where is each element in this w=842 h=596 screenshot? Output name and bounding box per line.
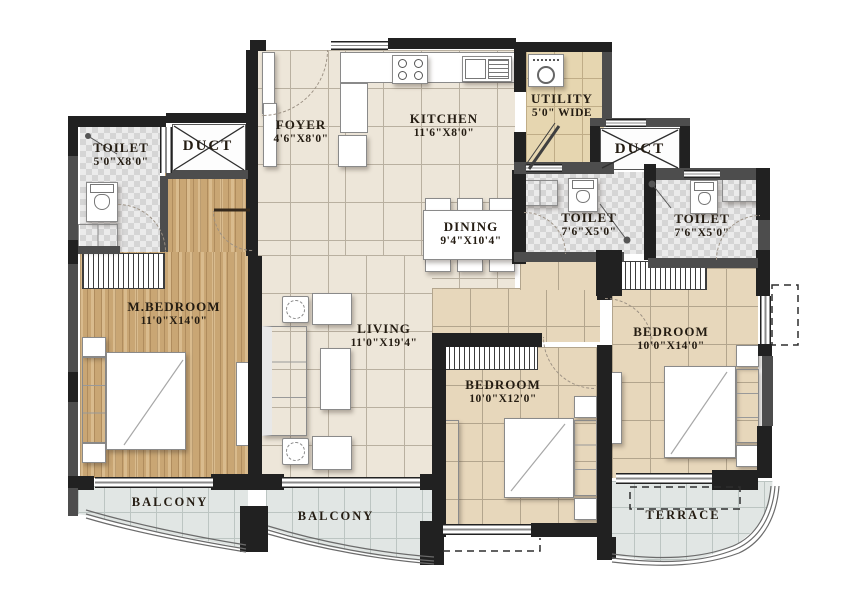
window (616, 473, 712, 484)
wc-toilet (86, 182, 118, 222)
side-table (282, 438, 309, 465)
room-name: BEDROOM (465, 378, 541, 393)
room-name: BALCONY (132, 495, 209, 509)
room-label-m-bedroom: M.BEDROOM 11'0"X14'0" (127, 300, 220, 328)
window (606, 119, 646, 127)
room-dims: 5'0"X8'0" (93, 156, 149, 169)
wc-tank (694, 182, 714, 191)
room-name: BEDROOM (633, 325, 709, 340)
window (331, 41, 388, 50)
window (443, 524, 531, 535)
wall-segment (211, 474, 284, 490)
wall-segment (68, 372, 78, 402)
wall-segment (68, 402, 78, 476)
wc-toilet (690, 180, 718, 214)
bed (504, 418, 574, 498)
room-dims: 4'6"X8'0" (274, 133, 329, 146)
washing-machine (528, 54, 564, 87)
room-name: BALCONY (298, 509, 375, 523)
room-name: DINING (440, 220, 501, 235)
burner-icon (398, 59, 407, 68)
wc-tank (90, 184, 114, 193)
room-label-toilet-right: TOILET 7'6"X5'0" (674, 212, 730, 240)
wall-segment (68, 264, 78, 372)
washing-machine-drum (537, 66, 555, 84)
room-label-duct-left: DUCT (183, 138, 234, 155)
wall-segment (514, 42, 526, 92)
window (95, 477, 213, 488)
room-name: TOILET (93, 141, 149, 156)
wall-segment (248, 256, 262, 474)
wall-segment (756, 268, 770, 296)
wall-segment (644, 164, 656, 260)
room-label-toilet-mid: TOILET 7'6"X5'0" (561, 211, 617, 239)
wall-segment (756, 168, 770, 220)
room-name: LIVING (351, 322, 418, 337)
side-table (282, 296, 309, 323)
floor-balcony-mid (266, 486, 436, 564)
wall-segment (531, 523, 597, 537)
wall-segment (166, 113, 256, 123)
room-dims: 10'0"X14'0" (633, 340, 709, 353)
wall-segment (516, 42, 612, 52)
bedside-table (82, 337, 106, 357)
wall-segment (78, 246, 120, 254)
room-name: DUCT (183, 138, 234, 154)
wall-segment (432, 333, 446, 537)
coffee-table (320, 348, 351, 410)
room-dims: 7'6"X5'0" (561, 226, 617, 239)
room-label-terrace: TERRACE (645, 508, 720, 522)
washing-machine-panel (533, 57, 559, 61)
bedside-table (736, 445, 759, 467)
stove (392, 55, 428, 84)
wall-segment (762, 356, 773, 426)
wall-segment (166, 170, 248, 179)
bed-headboard (574, 420, 597, 496)
window (684, 170, 720, 178)
side-table-top (286, 442, 305, 461)
burner-icon (414, 71, 423, 80)
wc-tank (572, 180, 594, 189)
bedside-table (574, 498, 597, 520)
room-name: DUCT (615, 141, 666, 157)
room-label-kitchen: KITCHEN 11'6"X8'0" (410, 112, 478, 140)
wc-bowl (698, 192, 711, 205)
bed (106, 352, 186, 450)
wall-segment (68, 240, 78, 264)
room-label-utility: UTILITY 5'0" WIDE (531, 92, 593, 120)
wall-segment (68, 116, 166, 127)
room-dims: 11'0"X19'4" (351, 337, 418, 350)
window (760, 296, 771, 344)
wall-segment (597, 345, 612, 560)
room-dims: 10'0"X12'0" (465, 393, 541, 406)
wardrobe (82, 253, 165, 289)
wall-segment (432, 333, 542, 347)
bed-headboard (82, 357, 106, 443)
wall-segment (597, 252, 612, 300)
room-name: TERRACE (645, 508, 720, 522)
wc-bowl (94, 194, 110, 210)
sink-basin (465, 59, 486, 79)
room-label-foyer: FOYER 4'6"X8'0" (274, 118, 329, 146)
room-label-balcony-mid: BALCONY (298, 509, 375, 523)
side-table-top (286, 300, 305, 319)
wall-segment (68, 116, 78, 156)
sink-drainboard (488, 59, 509, 79)
wall-segment (240, 506, 268, 552)
room-name: TOILET (674, 212, 730, 227)
bed-headboard (736, 369, 759, 443)
sofa (262, 326, 307, 436)
wall-segment (757, 426, 772, 478)
dining-chair (425, 259, 451, 272)
room-dims: 11'6"X8'0" (410, 127, 478, 140)
wall-segment (602, 52, 612, 120)
room-name: M.BEDROOM (127, 300, 220, 315)
wc-bowl (576, 190, 590, 203)
window (282, 477, 420, 488)
room-label-bedroom-mid: BEDROOM 10'0"X12'0" (465, 378, 541, 406)
floor-plan: TOILET 5'0"X8'0" DUCT FOYER 4'6"X8'0" KI… (0, 0, 842, 596)
burner-icon (414, 59, 423, 68)
burner-icon (398, 71, 407, 80)
wall-segment (598, 537, 616, 559)
armchair (312, 293, 352, 325)
wall-segment (68, 156, 78, 240)
room-dims: 5'0" WIDE (531, 107, 593, 120)
room-name: TOILET (561, 211, 617, 226)
bedside-table (736, 345, 759, 367)
room-label-dining: DINING 9'4"X10'4" (440, 220, 501, 248)
room-label-balcony-left: BALCONY (132, 495, 209, 509)
wall-segment (712, 470, 758, 490)
wall-segment (388, 38, 516, 49)
dining-chair (457, 259, 483, 272)
wall-segment (758, 344, 772, 356)
armchair (312, 436, 352, 470)
refrigerator (338, 135, 367, 167)
washbasin-cabinet (522, 180, 558, 206)
kitchen-counter (340, 83, 368, 133)
window (526, 164, 562, 172)
window (160, 127, 172, 173)
room-name: UTILITY (531, 92, 593, 107)
room-label-duct-right: DUCT (615, 141, 666, 158)
wall-segment (68, 488, 78, 516)
bed (664, 366, 736, 458)
room-label-toilet-left: TOILET 5'0"X8'0" (93, 141, 149, 169)
wc-toilet (568, 178, 598, 212)
room-dims: 7'6"X5'0" (674, 227, 730, 240)
bedside-table (574, 396, 597, 418)
kitchen-sink (462, 56, 512, 82)
bedside-table (82, 443, 106, 463)
room-dims: 9'4"X10'4" (440, 235, 501, 248)
room-name: FOYER (274, 118, 329, 133)
wall-segment (680, 126, 690, 172)
room-dims: 11'0"X14'0" (127, 315, 220, 328)
room-name: KITCHEN (410, 112, 478, 127)
room-label-living: LIVING 11'0"X19'4" (351, 322, 418, 350)
room-label-bedroom-right: BEDROOM 10'0"X14'0" (633, 325, 709, 353)
